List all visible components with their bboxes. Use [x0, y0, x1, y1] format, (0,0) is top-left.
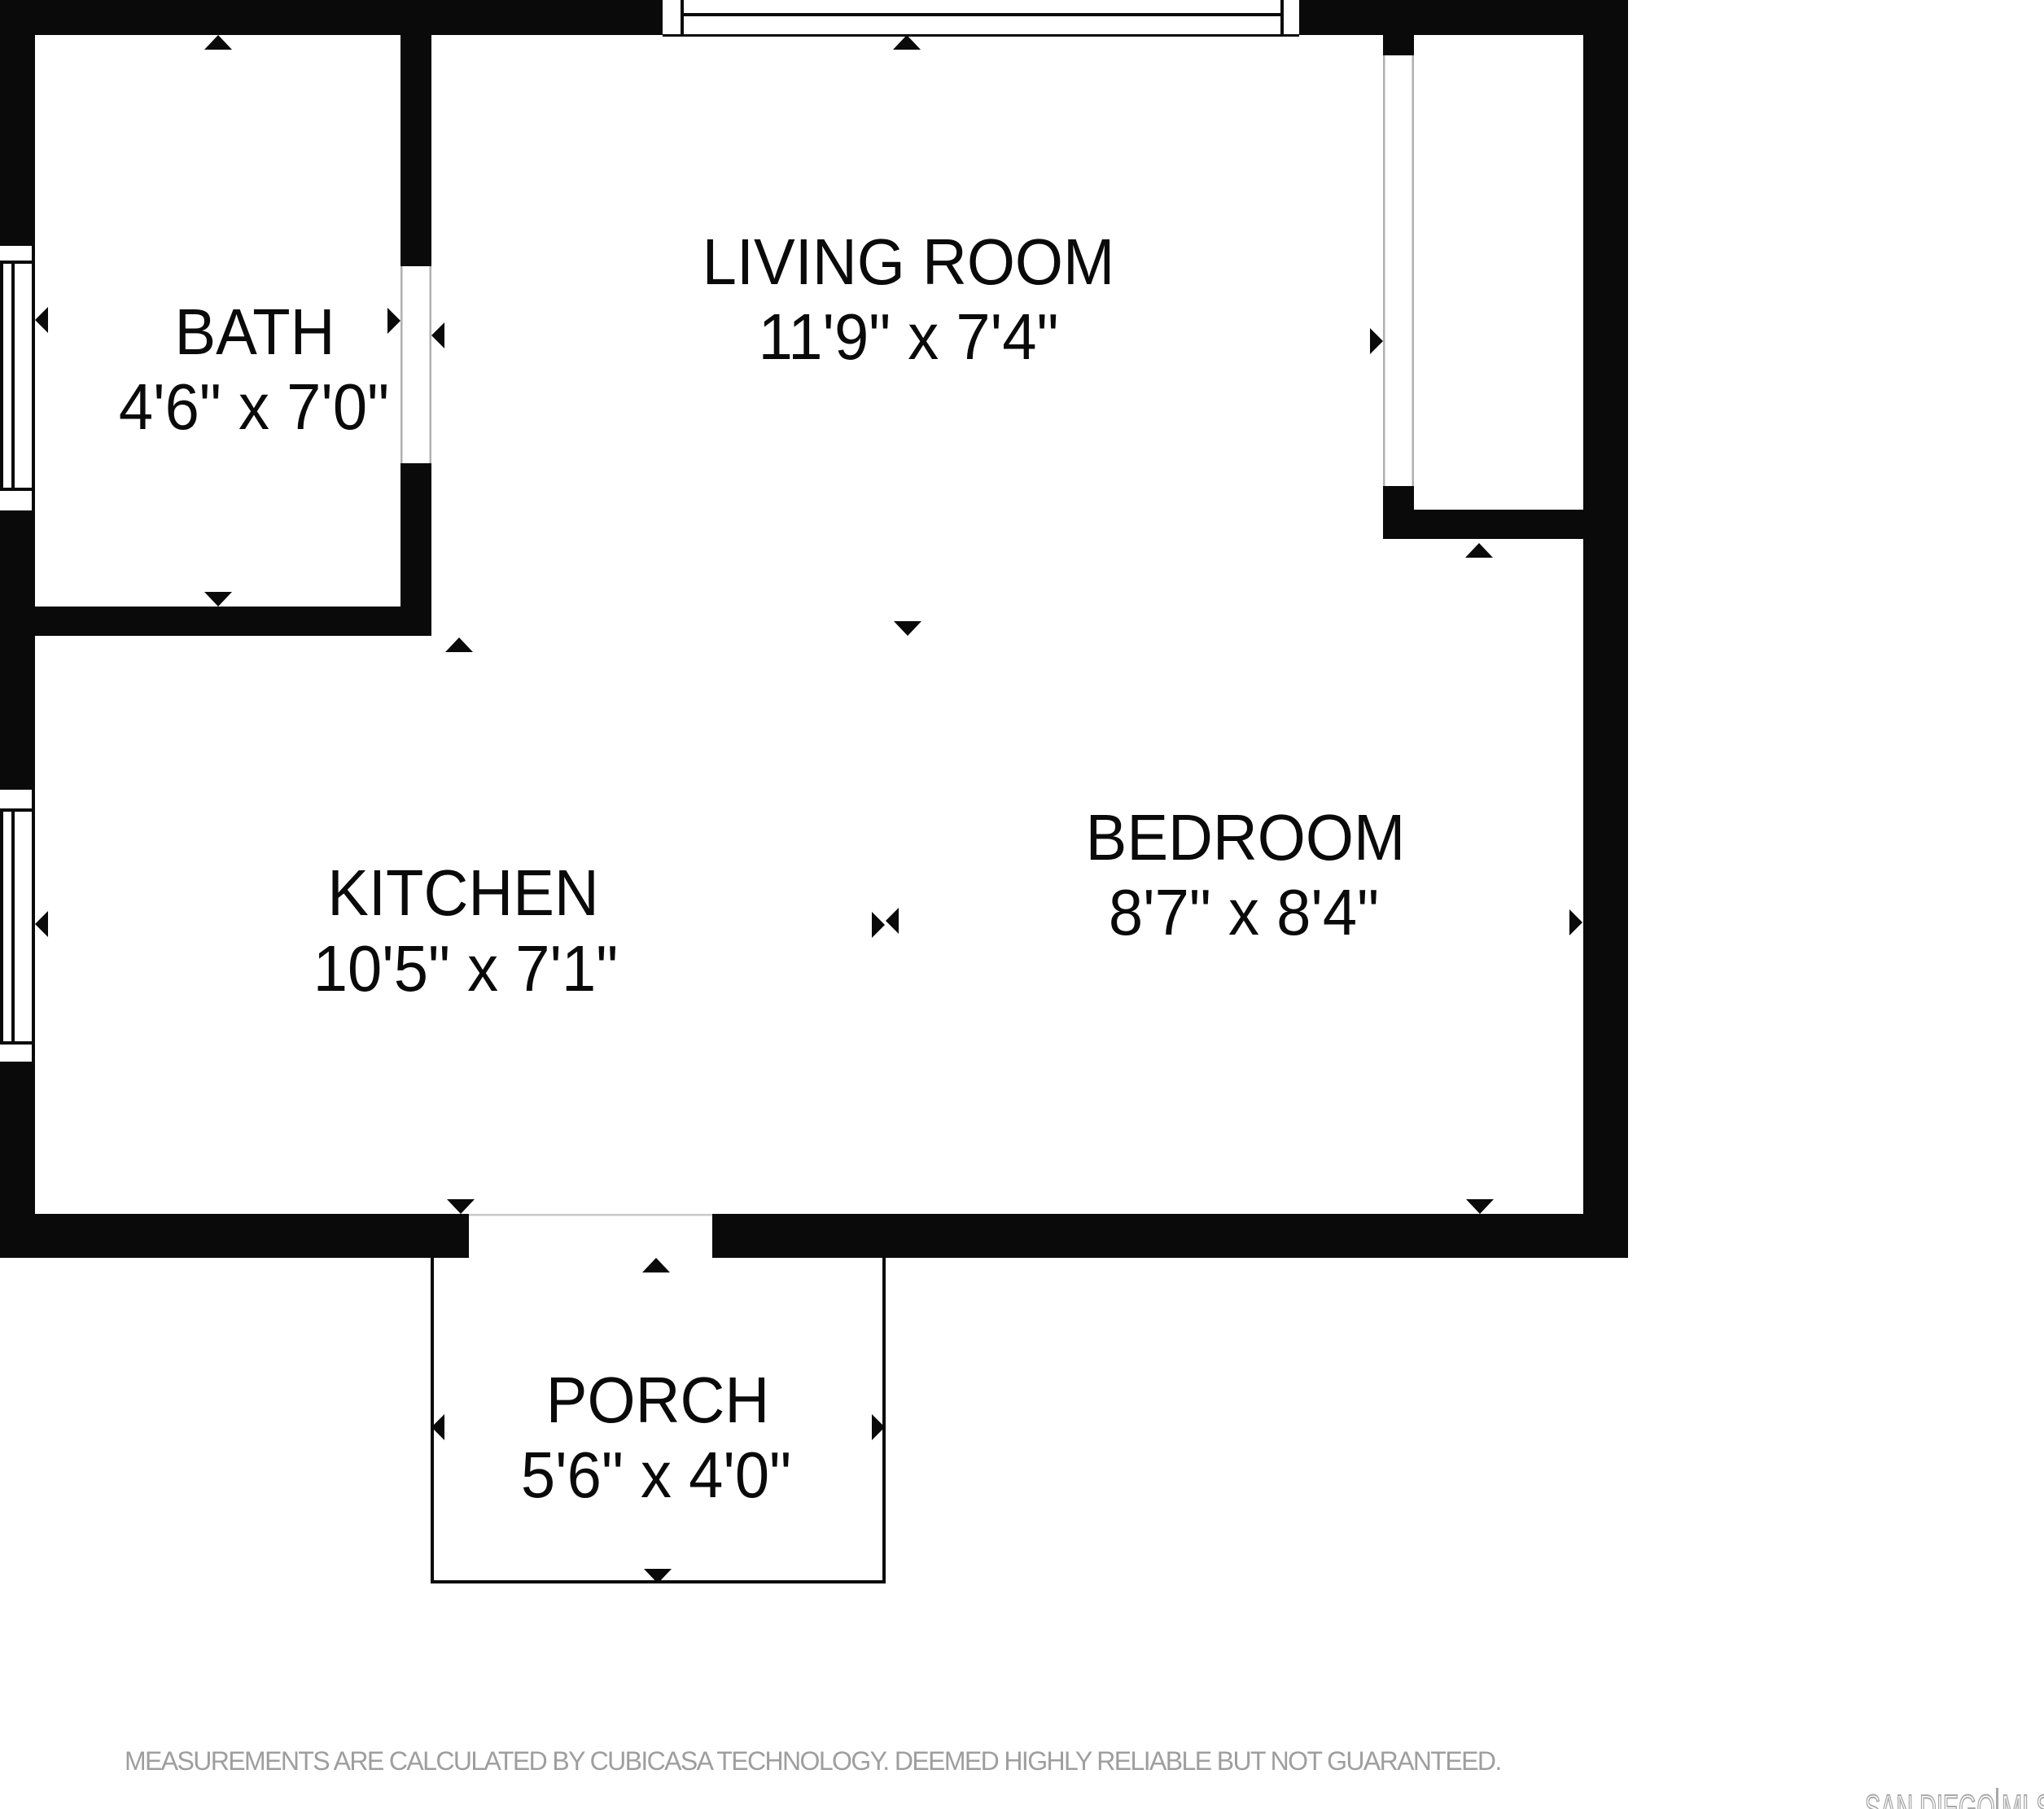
svg-text:MEASUREMENTS ARE CALCULATED BY: MEASUREMENTS ARE CALCULATED BY CUBICASA … [125, 1746, 1501, 1776]
svg-text:KITCHEN: KITCHEN [327, 857, 599, 929]
svg-text:PORCH: PORCH [546, 1364, 769, 1436]
svg-text:10'5" x 7'1": 10'5" x 7'1" [313, 933, 618, 1005]
svg-text:MLS: MLS [2002, 1789, 2044, 1809]
svg-text:8'7" x 8'4": 8'7" x 8'4" [1109, 877, 1379, 948]
svg-text:LIVING ROOM: LIVING ROOM [702, 226, 1115, 298]
svg-text:5'6" x 4'0": 5'6" x 4'0" [521, 1439, 791, 1511]
svg-text:BATH: BATH [174, 296, 335, 368]
svg-text:BEDROOM: BEDROOM [1086, 802, 1406, 874]
svg-text:SAN DIEGO: SAN DIEGO [1865, 1788, 1995, 1809]
svg-text:11'9" x 7'4": 11'9" x 7'4" [759, 301, 1059, 373]
svg-text:4'6" x 7'0": 4'6" x 7'0" [119, 371, 389, 443]
